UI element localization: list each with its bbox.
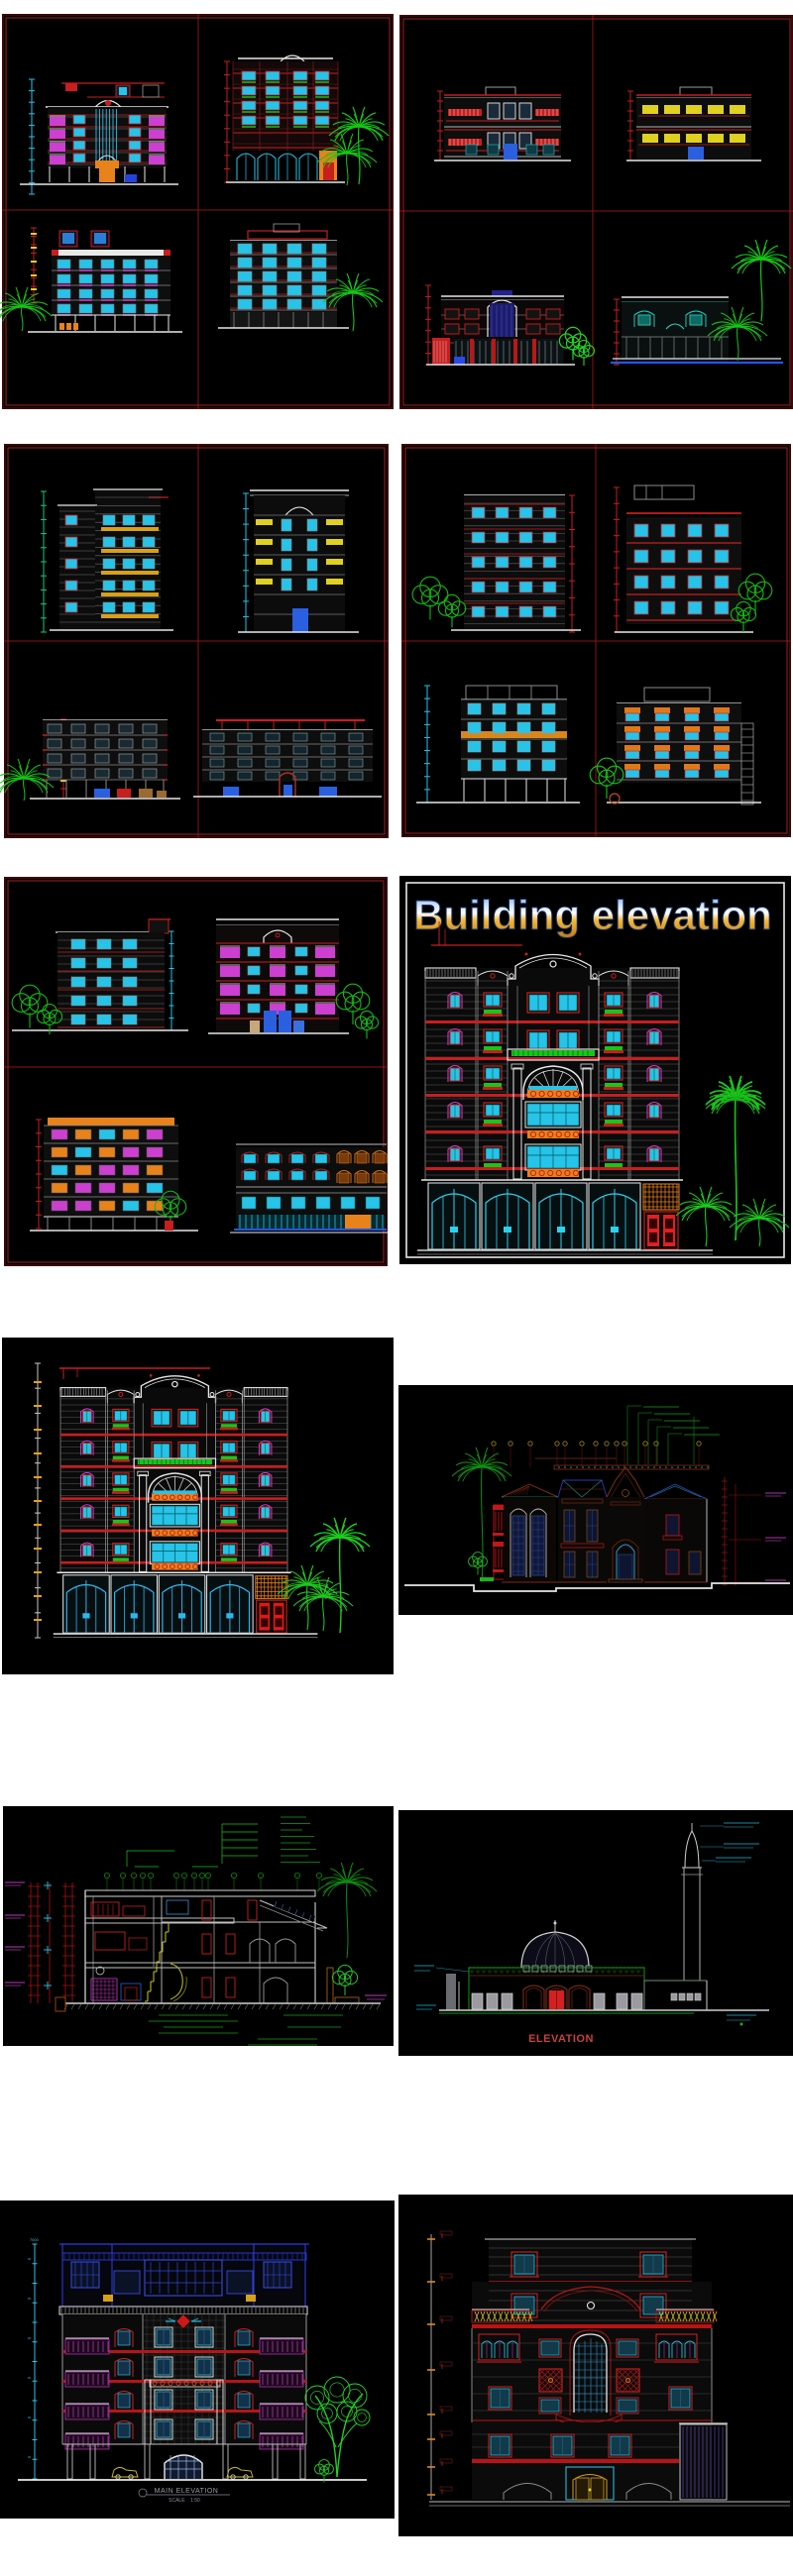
svg-text:7600: 7600 bbox=[30, 2237, 40, 2242]
svg-text:SCALE 1:50: SCALE 1:50 bbox=[169, 2498, 200, 2504]
svg-text:Building elevation: Building elevation bbox=[413, 892, 772, 938]
svg-text:ELEVATION: ELEVATION bbox=[528, 2033, 594, 2045]
svg-text:MAIN ELEVATION: MAIN ELEVATION bbox=[155, 2488, 219, 2495]
